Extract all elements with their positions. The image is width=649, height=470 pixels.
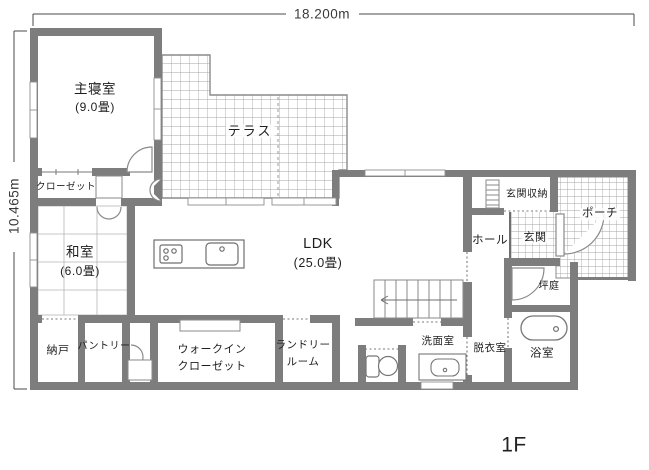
room-size-master-bedroom: (9.0畳) (75, 101, 115, 113)
room-label-terrace: テラス (226, 125, 275, 138)
tatami-mats (38, 206, 127, 315)
room-label-datsui: 脱衣室 (474, 343, 507, 354)
room-label-tsubo-niwa: 坪庭 (539, 282, 560, 292)
room-size-ldk: (25.0畳) (294, 257, 343, 270)
floor-plan: 18.200m 10.465m 主寝室 (9.0畳) クローゼット テラス 和室… (0, 0, 649, 470)
dimension-width-label: 18.200m (294, 7, 350, 21)
room-label-bath: 浴室 (530, 348, 554, 360)
washbasin-icon (419, 354, 466, 380)
kitchen-island (154, 240, 244, 268)
room-label-wic-line2: クローゼット (178, 362, 247, 373)
bedroom-storage-box (96, 176, 122, 198)
wic-closet-box (128, 360, 152, 380)
room-size-washitsu: (6.0畳) (60, 265, 100, 277)
kitchen-sink-icon (206, 243, 238, 265)
room-label-ldk: LDK (303, 237, 333, 252)
room-label-senmen: 洗面室 (422, 336, 455, 347)
closet-bifold-door (42, 169, 92, 175)
room-label-hall: ホール (472, 235, 508, 247)
wic-shelf (180, 320, 240, 331)
dimension-height-label: 10.465m (7, 178, 21, 234)
genkan-shoe-shelf (486, 180, 499, 208)
room-label-laundry-line1: ランドリー (276, 340, 331, 351)
bathtub-icon (521, 316, 567, 340)
stairs (374, 280, 463, 318)
room-label-master-bedroom: 主寝室 (74, 82, 116, 96)
room-label-wic-line1: ウォークイン (178, 345, 247, 356)
room-label-pantry: パントリー (78, 342, 131, 352)
toilet-icon (366, 356, 398, 377)
room-label-porch: ポーチ (580, 208, 620, 220)
room-label-genkan: 玄関 (522, 233, 549, 244)
room-label-laundry-line2: ルーム (287, 357, 320, 368)
room-label-genkan-storage: 玄関収納 (504, 190, 550, 200)
room-label-nando: 納戸 (47, 346, 70, 357)
room-label-closet: クローゼット (36, 182, 96, 192)
bedroom-door-arc (127, 147, 152, 172)
room-label-washitsu: 和室 (66, 245, 94, 259)
floor-number-label: 1F (501, 435, 527, 456)
stove-icon (160, 245, 182, 263)
